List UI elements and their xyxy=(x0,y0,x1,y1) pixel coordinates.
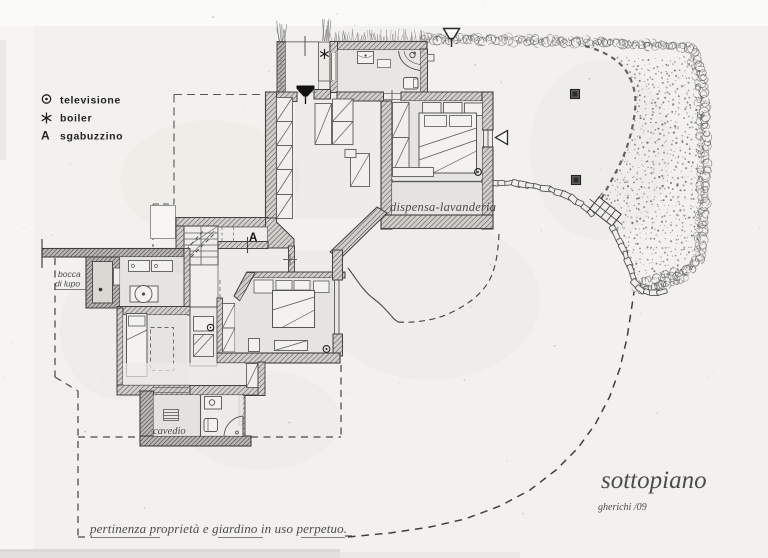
svg-text:sgabuzzino: sgabuzzino xyxy=(60,131,123,143)
svg-text:bocca: bocca xyxy=(58,269,81,279)
svg-text:cavedio: cavedio xyxy=(153,426,186,437)
svg-text:pertinenza proprietà e giar: pertinenza proprietà e giardino in uso p… xyxy=(89,521,347,536)
svg-text:boiler: boiler xyxy=(60,113,92,125)
svg-text:dispensa-lavanderia: dispensa-lavanderia xyxy=(390,200,496,214)
svg-text:televisione: televisione xyxy=(60,95,121,107)
svg-text:A: A xyxy=(41,129,50,143)
svg-text:gherichi /09: gherichi /09 xyxy=(598,502,647,513)
svg-text:di lupo: di lupo xyxy=(55,279,80,289)
svg-text:sottopiano: sottopiano xyxy=(601,467,707,494)
